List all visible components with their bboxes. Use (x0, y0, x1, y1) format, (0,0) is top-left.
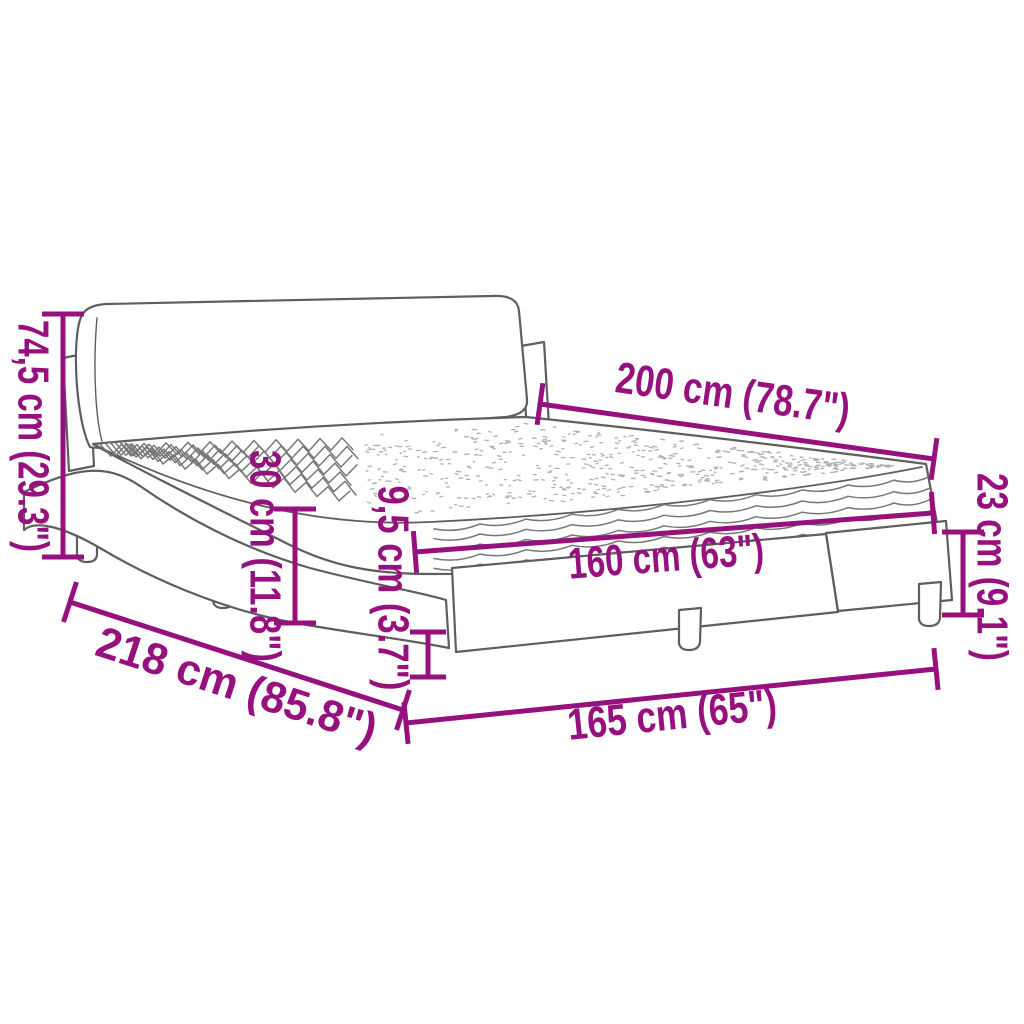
bed-leg-foot-right (919, 582, 941, 626)
dimension-label: 74,5 cm (29.3") (9, 320, 58, 552)
dimension-label: 9,5 cm (3.7") (369, 486, 418, 691)
diagram-svg: 74,5 cm (29.3") 200 cm (78.7") 30 cm (11… (0, 0, 1024, 1024)
dimension-foot-end-height: 23 cm (9.1") (942, 473, 1017, 661)
dimension-total-width: 165 cm (65") (404, 648, 938, 750)
dimension-diagram: 74,5 cm (29.3") 200 cm (78.7") 30 cm (11… (0, 0, 1024, 1024)
bed-leg-front-middle (679, 608, 701, 650)
bed-line-art (24, 296, 952, 652)
dimension-label: 200 cm (78.7") (613, 353, 854, 434)
dimension-label: 23 cm (9.1") (968, 473, 1017, 661)
dimension-label: 165 cm (65") (565, 680, 779, 750)
dimension-label: 30 cm (11.8") (241, 450, 290, 662)
dimension-label: 218 cm (85.8") (90, 617, 383, 754)
